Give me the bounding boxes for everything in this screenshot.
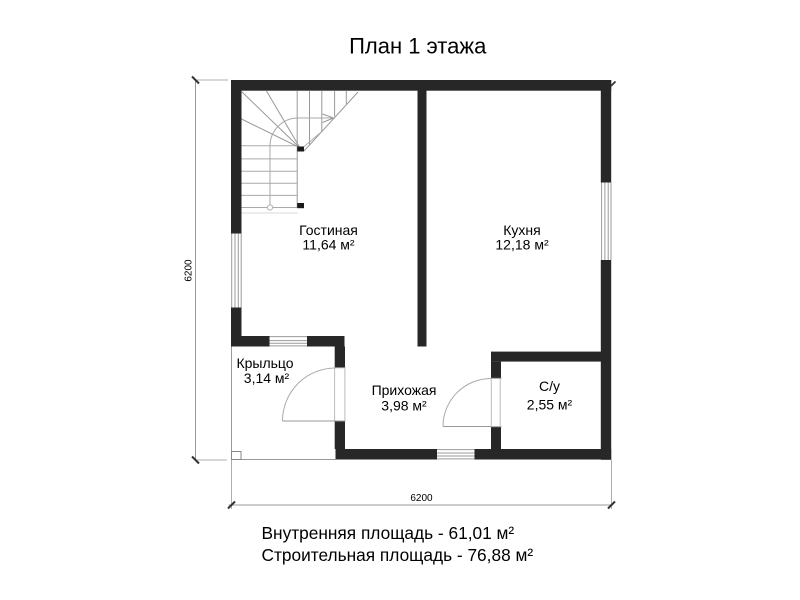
svg-text:Строительная площадь - 76,88 м: Строительная площадь - 76,88 м² (262, 545, 534, 565)
svg-text:11,64 м²: 11,64 м² (302, 237, 355, 253)
svg-text:План 1 этажа: План 1 этажа (349, 34, 487, 59)
svg-text:12,18 м²: 12,18 м² (495, 237, 549, 253)
svg-text:Прихожая: Прихожая (372, 382, 437, 398)
svg-text:С/у: С/у (539, 378, 560, 394)
svg-text:2,55 м²: 2,55 м² (527, 397, 573, 413)
svg-text:6200: 6200 (184, 259, 195, 282)
svg-text:Крыльцо: Крыльцо (236, 355, 293, 371)
svg-text:3,14 м²: 3,14 м² (244, 370, 290, 386)
svg-text:3,98 м²: 3,98 м² (381, 398, 427, 414)
svg-text:6200: 6200 (410, 493, 433, 504)
svg-text:Внутренняя площадь - 61,01 м²: Внутренняя площадь - 61,01 м² (262, 523, 515, 543)
